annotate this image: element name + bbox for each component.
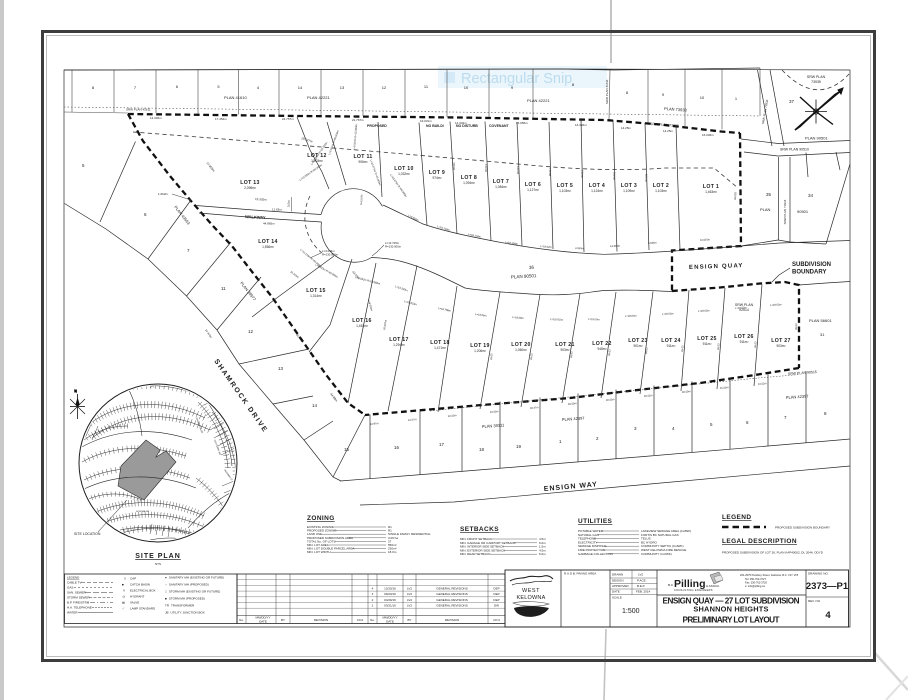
svg-text:24.757m: 24.757m (282, 117, 294, 121)
svg-text:ZONING: ZONING (307, 515, 335, 522)
svg-text:ELECTRICAL BOX: ELECTRICAL BOX (130, 589, 156, 593)
svg-text:GENERAL REVISIONS: GENERAL REVISIONS (436, 592, 467, 596)
svg-text:1,103m²: 1,103m² (655, 189, 667, 193)
svg-text:45.015: 45.015 (516, 166, 520, 174)
svg-text:BY: BY (281, 618, 285, 622)
svg-text:BY: BY (407, 618, 411, 622)
svg-text:SRW PLAN 41611: SRW PLAN 41611 (126, 108, 151, 112)
svg-text:45.023: 45.023 (644, 173, 648, 182)
svg-text:17.454m: 17.454m (215, 117, 227, 121)
svg-text:BOUNDARY: BOUNDARY (792, 270, 826, 276)
svg-text:45.011: 45.011 (452, 162, 456, 170)
svg-text:DATE: DATE (386, 619, 394, 623)
svg-text:●SANITARY MH (EXISTING OR FUTU: ●SANITARY MH (EXISTING OR FUTURE) (165, 576, 224, 580)
svg-text:DRAWN: DRAWN (612, 573, 623, 577)
svg-text:L=18.05m: L=18.05m (735, 305, 747, 310)
svg-text:L=18.05m: L=18.05m (662, 311, 674, 316)
svg-text:GAS: GAS (67, 586, 73, 590)
svg-text:1,452m²: 1,452m² (356, 324, 368, 328)
svg-text:N: N (75, 389, 77, 393)
svg-text:45.03: 45.03 (489, 353, 493, 360)
svg-text:45.013: 45.013 (484, 164, 488, 172)
svg-text:◎: ◎ (123, 595, 126, 599)
svg-text:MIN. LOT WIDTH: MIN. LOT WIDTH (307, 550, 331, 554)
svg-text:L=18.05m: L=18.05m (625, 314, 637, 318)
svg-text:PLAN 42221: PLAN 42221 (527, 98, 550, 103)
svg-text:e: info@pilling.ca: e: info@pilling.ca (745, 584, 765, 588)
svg-text:SRW PLAN 73934: SRW PLAN 73934 (783, 199, 787, 224)
svg-text:04/29/16: 04/29/16 (384, 598, 396, 602)
svg-text:DW: DW (494, 604, 499, 608)
svg-text:201-2675 Pandosy Street, Kelow: 201-2675 Pandosy Street, Kelowna, B.C. V… (740, 573, 799, 577)
svg-text:PLAN 42221: PLAN 42221 (307, 95, 330, 100)
svg-text:UTILITIES: UTILITIES (578, 518, 613, 525)
svg-text:PLAN 90501: PLAN 90501 (805, 136, 828, 141)
svg-text:LAMP STANDARD: LAMP STANDARD (130, 607, 156, 611)
svg-text:R=15.000: R=15.000 (360, 194, 364, 205)
svg-text:JBUTILITY JUNCTION BOX: JBUTILITY JUNCTION BOX (165, 611, 205, 615)
svg-text:1,084m²: 1,084m² (495, 185, 507, 189)
svg-text:& ASSOC.: & ASSOC. (706, 584, 720, 588)
svg-text:14: 14 (312, 403, 318, 408)
svg-text:906m²: 906m² (358, 160, 367, 164)
svg-text:911m²: 911m² (703, 342, 712, 346)
svg-text:CONSULTING ENGINEERS: CONSULTING ENGINEERS (674, 588, 713, 592)
svg-text:36: 36 (529, 265, 535, 270)
svg-text:DESIGN: DESIGN (612, 579, 624, 583)
svg-text:35: 35 (766, 192, 772, 197)
svg-text:MIN. REAR SETBACK: MIN. REAR SETBACK (460, 552, 490, 556)
svg-text:11.63m: 11.63m (272, 208, 282, 212)
svg-text:2,096m²: 2,096m² (244, 186, 256, 190)
svg-text:1,109m²: 1,109m² (623, 189, 635, 193)
svg-text:COMMUNITY (CofWK): COMMUNITY (CofWK) (641, 552, 672, 556)
svg-text:14: 14 (298, 85, 303, 90)
svg-text:REVISION: REVISION (314, 618, 328, 622)
svg-text:31: 31 (820, 332, 825, 337)
svg-text:1,124m²: 1,124m² (591, 189, 603, 193)
svg-text:R=130.000m: R=130.000m (385, 245, 402, 249)
svg-text:Rectangular Snip: Rectangular Snip (461, 71, 572, 87)
svg-text:LV2: LV2 (407, 604, 412, 608)
svg-text:45.03: 45.03 (680, 345, 684, 352)
svg-text:SITE LOCATION: SITE LOCATION (74, 532, 101, 536)
svg-text:1,206m²: 1,206m² (474, 349, 486, 353)
svg-text:12: 12 (382, 85, 387, 90)
svg-text:GENERAL REVISIONS: GENERAL REVISIONS (436, 598, 467, 602)
svg-text:3.050m: 3.050m (575, 246, 584, 250)
svg-text:SITE PLAN: SITE PLAN (135, 553, 181, 560)
svg-text:COVENANT: COVENANT (489, 124, 510, 128)
svg-text:○SANITARY MH (PROPOSED): ○SANITARY MH (PROPOSED) (165, 583, 209, 587)
svg-text:16.002m: 16.002m (702, 133, 714, 137)
svg-text:44.865m: 44.865m (263, 222, 275, 226)
svg-text:KELOWNA: KELOWNA (517, 595, 546, 601)
svg-text:948m²: 948m² (597, 347, 606, 351)
svg-text:GENERAL REVISIONS: GENERAL REVISIONS (436, 587, 467, 591)
svg-text:1.062m: 1.062m (158, 192, 169, 196)
svg-text:45.03: 45.03 (569, 351, 573, 358)
svg-text:974m²: 974m² (432, 176, 441, 180)
svg-text:14.332m: 14.332m (575, 123, 587, 127)
svg-text:■: ■ (122, 583, 124, 587)
svg-text:16: 16 (394, 445, 400, 450)
svg-text:R.A.D B. PAVING AREA: R.A.D B. PAVING AREA (564, 572, 596, 576)
svg-text:911m²: 911m² (667, 344, 676, 348)
svg-text:SHANNON HEIGHTS: SHANNON HEIGHTS (693, 605, 768, 614)
svg-text:SUBDIVISION: SUBDIVISION (792, 262, 831, 268)
svg-text:PLAN 56601: PLAN 56601 (809, 318, 832, 323)
svg-text:LV2: LV2 (638, 573, 643, 577)
svg-text:DRAWING NO.: DRAWING NO. (808, 572, 829, 576)
svg-text:2373—P1: 2373—P1 (806, 581, 849, 592)
svg-text:DEP: DEP (493, 587, 499, 591)
svg-text:R=130.000m: R=130.000m (322, 253, 339, 257)
svg-text:14.25m: 14.25m (621, 126, 632, 130)
svg-text:LEGAL DESCRIPTION: LEGAL DESCRIPTION (722, 538, 797, 545)
svg-text:SRW PLAN: SRW PLAN (807, 75, 826, 79)
svg-text:○': ○' (122, 607, 125, 611)
svg-text:13: 13 (278, 366, 284, 371)
svg-text:09/23/16: 09/23/16 (384, 592, 396, 596)
svg-text:45.03: 45.03 (753, 341, 757, 348)
svg-text:■STORM MH (PROPOSED): ■STORM MH (PROPOSED) (165, 597, 205, 601)
svg-text:▤: ▤ (122, 601, 125, 605)
svg-text:PROPOSED SUBDIVISION OF LOT 26: PROPOSED SUBDIVISION OF LOT 26, PLAN KAP… (722, 551, 824, 555)
svg-text:1,032m²: 1,032m² (398, 172, 410, 176)
svg-text:1,463m²: 1,463m² (705, 190, 717, 194)
svg-text:15: 15 (344, 447, 350, 452)
svg-text:DEP: DEP (493, 598, 499, 602)
svg-text:WATER: WATER (67, 611, 78, 615)
svg-text:B.C: B.C (668, 583, 674, 587)
svg-text:SCALE: SCALE (612, 596, 622, 600)
svg-text:L=18.052m: L=18.052m (550, 317, 563, 322)
svg-text:B.P. FIRE/STRM: B.P. FIRE/STRM (67, 601, 90, 605)
svg-text:03/21/16: 03/21/16 (384, 604, 396, 608)
svg-text:17: 17 (439, 442, 445, 447)
svg-text:45.017: 45.017 (548, 168, 552, 176)
svg-text:GENERAL REVISIONS: GENERAL REVISIONS (436, 604, 467, 608)
svg-text:CABLE TV: CABLE TV (67, 581, 81, 585)
svg-text:14.25m: 14.25m (663, 129, 674, 133)
svg-text:SETBACKS: SETBACKS (460, 526, 499, 533)
svg-text:1,103m²: 1,103m² (559, 189, 571, 193)
svg-text:CK'd: CK'd (357, 618, 364, 622)
svg-text:SRW PLAN 90510: SRW PLAN 90510 (780, 148, 809, 152)
svg-text:Fax: 250-762-3720: Fax: 250-762-3720 (745, 581, 767, 585)
svg-text:12: 12 (248, 329, 254, 334)
svg-text:L=18.05m: L=18.05m (588, 317, 600, 321)
svg-text:1,471m²: 1,471m² (434, 346, 446, 350)
svg-text:VALVE: VALVE (130, 601, 139, 605)
svg-text:No.: No. (239, 618, 244, 622)
svg-text:PROPOSED: PROPOSED (367, 124, 387, 128)
svg-text:37: 37 (789, 99, 795, 104)
svg-text:10: 10 (700, 95, 705, 100)
svg-text:903m²: 903m² (776, 344, 785, 348)
svg-text:45.03: 45.03 (794, 323, 798, 330)
svg-text:V: V (123, 589, 125, 593)
svg-text:L=18.05m: L=18.05m (770, 302, 782, 307)
svg-text:CAP: CAP (130, 577, 136, 581)
svg-text:HYDRANT: HYDRANT (130, 595, 145, 599)
svg-text:14.332m: 14.332m (150, 116, 162, 120)
svg-text:LV2: LV2 (407, 598, 412, 602)
svg-text:14.332m: 14.332m (455, 121, 467, 125)
svg-text:B.E.P.: B.E.P. (637, 584, 645, 588)
svg-text:STORM SEWER: STORM SEWER (67, 596, 90, 600)
svg-text:19.031m: 19.031m (420, 119, 432, 123)
svg-text:NO BUILD/: NO BUILD/ (426, 124, 444, 128)
svg-text:45.03: 45.03 (607, 349, 611, 356)
svg-text:15.332m: 15.332m (255, 197, 267, 202)
svg-text:CATCH BASIN: CATCH BASIN (130, 583, 150, 587)
svg-text:45.019: 45.019 (580, 169, 584, 178)
svg-text:SRW PLAN 41611: SRW PLAN 41611 (605, 79, 609, 104)
svg-text:45.03: 45.03 (716, 343, 720, 350)
svg-text:90501: 90501 (797, 209, 809, 214)
svg-text:DATE: DATE (612, 590, 620, 594)
svg-text:4: 4 (825, 610, 831, 621)
svg-text:APPROVED: APPROVED (612, 584, 630, 588)
svg-text:31.010m: 31.010m (700, 237, 710, 242)
svg-text:LEGEND: LEGEND (67, 576, 80, 580)
svg-text:PLAN 41610: PLAN 41610 (224, 95, 247, 100)
svg-text:GARBAGE COLLECTION: GARBAGE COLLECTION (578, 552, 613, 556)
svg-text:1,294m²: 1,294m² (393, 343, 405, 347)
svg-text:13: 13 (340, 85, 345, 90)
svg-text:11: 11 (221, 286, 226, 291)
svg-text:H.A. TELEPHONE: H.A. TELEPHONE (67, 606, 92, 610)
svg-text:L=18.05m: L=18.05m (698, 308, 710, 313)
svg-text:PRELIMINARY LOT LAYOUT: PRELIMINARY LOT LAYOUT (683, 616, 780, 625)
svg-text:No.: No. (370, 618, 375, 622)
svg-text:1,556m²: 1,556m² (262, 245, 274, 249)
svg-text:12/20/16: 12/20/16 (384, 587, 396, 591)
svg-text:5.035m: 5.035m (648, 241, 657, 245)
svg-text:1,127m²: 1,127m² (527, 188, 539, 192)
svg-text:WEST: WEST (522, 588, 540, 594)
svg-text:PLAN: PLAN (760, 207, 771, 212)
svg-text:DEP: DEP (493, 592, 499, 596)
svg-text:903m²: 903m² (560, 348, 569, 352)
svg-text:DATE: DATE (259, 619, 267, 623)
svg-text:LV2: LV2 (407, 587, 412, 591)
svg-text:1:500: 1:500 (622, 608, 640, 615)
svg-text:Tel: 250-762-3727: Tel: 250-762-3727 (745, 577, 766, 581)
svg-text:SONORA DR: SONORA DR (136, 510, 150, 513)
svg-text:LEGEND: LEGEND (722, 514, 752, 521)
svg-text:1,060m²: 1,060m² (515, 348, 527, 352)
svg-text:45.025: 45.025 (733, 191, 737, 200)
svg-text:15.056m: 15.056m (516, 121, 528, 125)
svg-text:34: 34 (808, 193, 814, 198)
svg-text:10: 10 (464, 85, 469, 90)
svg-text:FEB. 2014: FEB. 2014 (636, 590, 651, 594)
svg-text:CK'd: CK'd (493, 618, 500, 622)
svg-text:19: 19 (516, 444, 522, 449)
svg-text:P.ACE.: P.ACE. (637, 579, 647, 583)
svg-text:□STORM MH (EXISTING OR FUTURE): □STORM MH (EXISTING OR FUTURE) (165, 590, 220, 594)
svg-text:45.021: 45.021 (612, 171, 616, 180)
svg-text:18: 18 (479, 447, 485, 452)
svg-text:45.03: 45.03 (529, 353, 533, 360)
svg-text:1,094m²: 1,094m² (463, 181, 475, 185)
svg-text:1,314m²: 1,314m² (310, 294, 322, 298)
svg-text:5.0m: 5.0m (287, 200, 291, 207)
svg-text:73935: 73935 (811, 80, 821, 84)
svg-text:18.0m: 18.0m (388, 550, 397, 554)
svg-text:14.332m: 14.332m (610, 244, 620, 248)
svg-text:SAN. SEWER: SAN. SEWER (67, 591, 87, 595)
svg-text:PROPOSED SUBDIVISION BOUNDARY: PROPOSED SUBDIVISION BOUNDARY (775, 526, 830, 530)
svg-text:6.0m: 6.0m (539, 552, 546, 556)
svg-text:REV. NO.: REV. NO. (808, 599, 821, 603)
svg-text:21.767m: 21.767m (352, 118, 364, 122)
svg-text:45.03: 45.03 (644, 347, 648, 354)
svg-text:LV2: LV2 (407, 592, 412, 596)
svg-text:901m²: 901m² (633, 344, 642, 348)
svg-text:911m²: 911m² (740, 340, 749, 344)
svg-text:REVISION: REVISION (445, 618, 459, 622)
svg-text:NTS: NTS (155, 562, 161, 566)
